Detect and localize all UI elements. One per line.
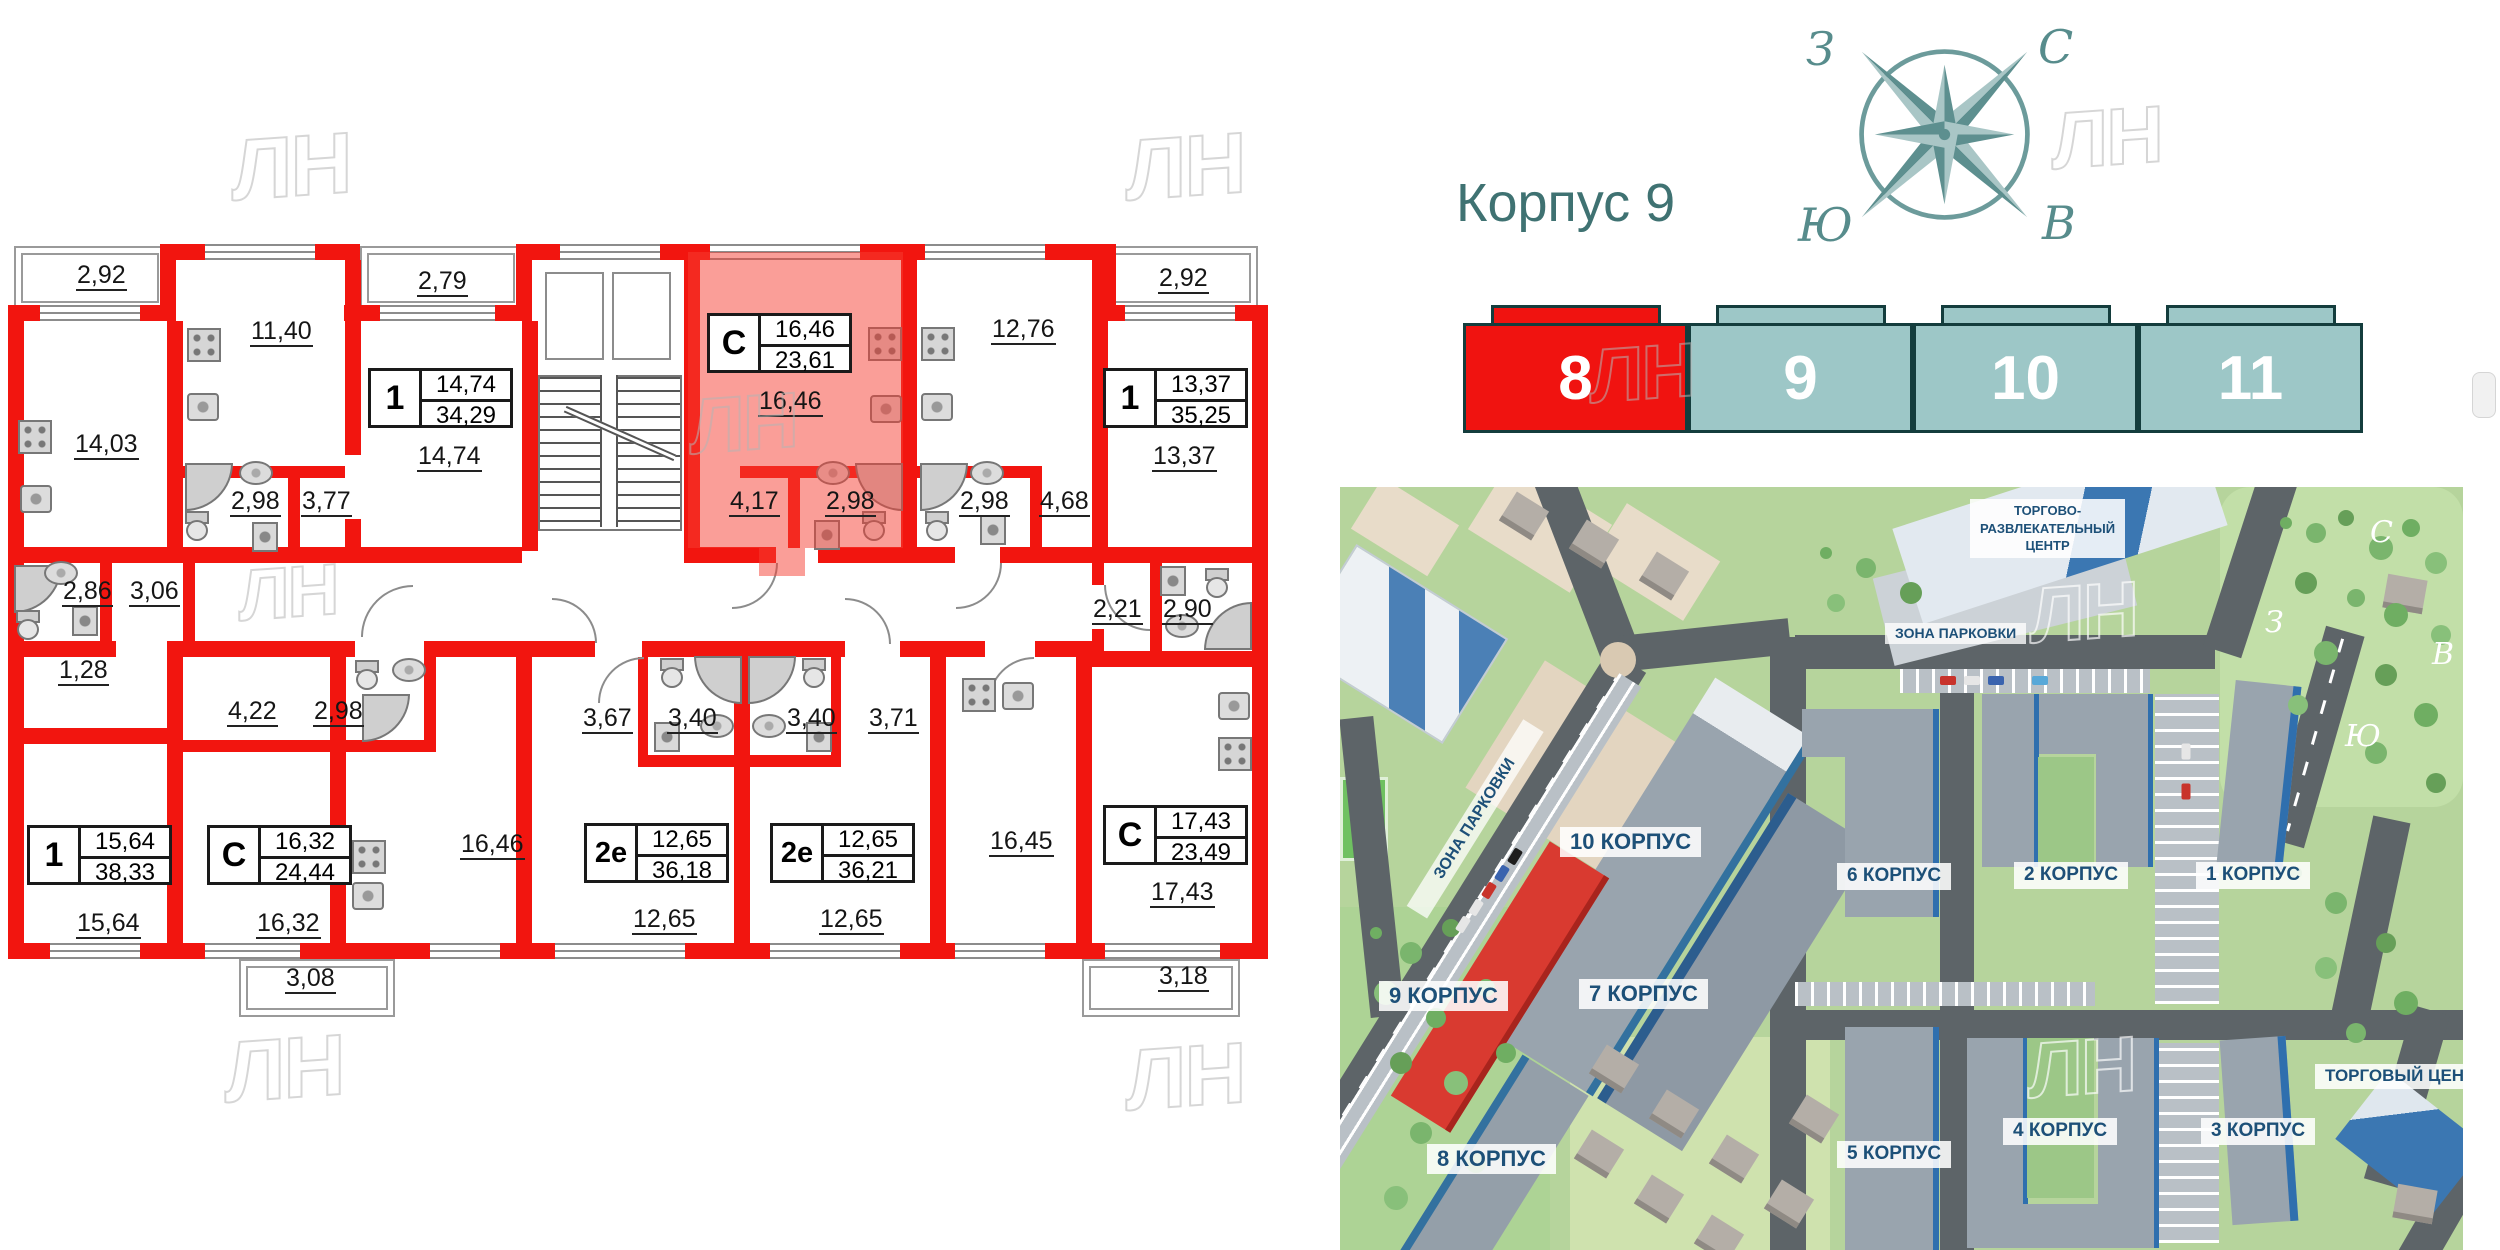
map-car bbox=[2182, 744, 2191, 760]
room-area-label: 12,65 bbox=[632, 906, 697, 935]
window bbox=[430, 943, 500, 959]
map-label-mall: ТОРГОВО- РАЗВЛЕКАТЕЛЬНЫЙ ЦЕНТР bbox=[1970, 499, 2125, 558]
apartment-badge: 2е 12,6536,18 bbox=[584, 823, 729, 883]
logo-watermark: ЛН bbox=[1126, 114, 1244, 221]
room-area-label: 3,77 bbox=[301, 488, 352, 517]
map-label-korpus-4: 4 КОРПУС bbox=[2003, 1118, 2117, 1145]
washbasin-icon bbox=[239, 461, 273, 485]
apartment-type: С bbox=[210, 828, 261, 882]
room-area-label: 12,76 bbox=[991, 316, 1056, 345]
window bbox=[925, 244, 1045, 260]
washing-machine-icon bbox=[72, 606, 98, 636]
map-label-mall-line: ЦЕНТР bbox=[1980, 537, 2115, 555]
door-arc bbox=[845, 598, 891, 644]
stove-icon bbox=[921, 327, 955, 361]
washing-machine-icon bbox=[252, 522, 278, 552]
wall bbox=[344, 547, 522, 563]
apartment-type: С bbox=[1106, 808, 1157, 862]
room-area-label: 2,21 bbox=[1092, 596, 1143, 625]
total-area: 36,21 bbox=[824, 857, 912, 885]
map-compass-north-label: С bbox=[2370, 515, 2393, 550]
apartment-type: 1 bbox=[30, 828, 81, 882]
shower-icon bbox=[362, 694, 410, 742]
living-area: 16,32 bbox=[261, 828, 349, 859]
total-area: 35,25 bbox=[1157, 402, 1245, 430]
elevator-shaft bbox=[545, 272, 604, 360]
wall bbox=[901, 260, 917, 547]
wall bbox=[930, 641, 946, 943]
map-car bbox=[2032, 676, 2048, 685]
logo-watermark: ЛН bbox=[1126, 1024, 1244, 1131]
floorplan: 2,92 11,40 2,79 14,74 14,03 2,98 3,77 16… bbox=[0, 0, 1340, 1250]
sink-icon bbox=[352, 882, 384, 910]
wall bbox=[183, 563, 195, 641]
map-car bbox=[1964, 676, 1980, 685]
map-cottage bbox=[2382, 574, 2427, 614]
map-label-korpus-3: 3 КОРПУС bbox=[2201, 1118, 2315, 1145]
page: 2,92 11,40 2,79 14,74 14,03 2,98 3,77 16… bbox=[0, 0, 2500, 1250]
building-number: 10 bbox=[1991, 343, 2060, 414]
apartment-badge: 1 13,3735,25 bbox=[1103, 368, 1248, 428]
wall bbox=[424, 641, 436, 752]
apartment-badge: С 17,4323,49 bbox=[1103, 805, 1248, 865]
map-building-5 bbox=[1845, 1027, 1939, 1250]
wall bbox=[8, 728, 183, 744]
total-area: 38,33 bbox=[81, 859, 169, 887]
room-area-label: 3,71 bbox=[868, 705, 919, 734]
stove-icon bbox=[187, 328, 221, 362]
stove-icon bbox=[962, 678, 996, 712]
room-area-label: 2,86 bbox=[62, 578, 113, 607]
logo-watermark: ЛН bbox=[225, 1016, 343, 1123]
logo-watermark: ЛН bbox=[2028, 1018, 2135, 1116]
wall bbox=[1092, 547, 1268, 563]
logo-watermark: ЛН bbox=[690, 374, 797, 472]
total-area: 34,29 bbox=[422, 402, 510, 430]
window bbox=[1125, 305, 1235, 321]
stove-icon bbox=[352, 840, 386, 874]
door-arc bbox=[598, 657, 644, 703]
apartment-type: 2е bbox=[587, 826, 638, 880]
map-label-korpus-6: 6 КОРПУС bbox=[1837, 863, 1951, 890]
room-area-label: 11,40 bbox=[250, 318, 313, 347]
washbasin-icon bbox=[392, 658, 426, 682]
wall bbox=[167, 641, 183, 943]
map-trees bbox=[1370, 927, 1382, 939]
logo-watermark: ЛН bbox=[239, 549, 338, 638]
wall bbox=[638, 755, 841, 767]
shower-icon bbox=[694, 656, 742, 704]
room-area-label: 14,03 bbox=[74, 431, 139, 460]
compass-west-label: З bbox=[1806, 22, 1835, 76]
wall bbox=[330, 641, 346, 943]
toilet-icon bbox=[925, 511, 945, 539]
map-label-korpus-2: 2 КОРПУС bbox=[2014, 862, 2128, 889]
apartment-badge: 1 14,7434,29 bbox=[368, 368, 513, 428]
stove-icon bbox=[18, 420, 52, 454]
living-area: 12,65 bbox=[824, 826, 912, 857]
building-number: 11 bbox=[2218, 343, 2284, 414]
room-area-label: 4,17 bbox=[729, 488, 780, 517]
apartment-badge: С 16,3224,44 bbox=[207, 825, 352, 885]
room-area-label: 2,90 bbox=[1162, 596, 1213, 625]
room-area-label: 4,22 bbox=[227, 698, 278, 727]
toilet-icon bbox=[660, 658, 680, 686]
room-area-label: 3,06 bbox=[129, 578, 180, 607]
room-area-label: 13,37 bbox=[1152, 443, 1217, 472]
site-map: С З В Ю 10 КОРПУС 6 КОРПУС 2 КОРПУС 1 КО… bbox=[1340, 487, 2463, 1250]
room-area-label: 16,46 bbox=[460, 831, 525, 860]
room-area-label: 3,40 bbox=[786, 705, 837, 734]
room-area-label: 2,92 bbox=[1158, 265, 1209, 294]
door-arc bbox=[552, 598, 597, 643]
living-area: 15,64 bbox=[81, 828, 169, 859]
door-arc bbox=[361, 585, 413, 637]
wall bbox=[516, 641, 532, 943]
map-cottage bbox=[2392, 1184, 2437, 1224]
room-area-label: 2,79 bbox=[417, 268, 468, 297]
room-area-label: 12,65 bbox=[819, 906, 884, 935]
map-label-mall-line: ТОРГОВО- bbox=[1980, 502, 2115, 520]
toilet-icon bbox=[16, 610, 36, 638]
room-area-label: 3,40 bbox=[667, 705, 718, 734]
map-label-korpus-1: 1 КОРПУС bbox=[2196, 862, 2310, 889]
map-building-6-wing bbox=[1802, 709, 1932, 757]
map-label-korpus-7: 7 КОРПУС bbox=[1579, 979, 1708, 1009]
total-area: 24,44 bbox=[261, 859, 349, 887]
window bbox=[1105, 943, 1220, 959]
total-area: 36,18 bbox=[638, 857, 726, 885]
map-parking-strip bbox=[1795, 982, 2095, 1006]
map-label-shopping-center: ТОРГОВЫЙ ЦЕНТР bbox=[2315, 1064, 2463, 1089]
window bbox=[560, 244, 660, 260]
window bbox=[955, 943, 1045, 959]
window bbox=[50, 943, 140, 959]
logo-watermark: ЛН bbox=[2030, 563, 2137, 661]
shower-icon bbox=[185, 463, 233, 511]
apartment-badge-highlighted: С 16,4623,61 bbox=[707, 313, 852, 373]
apartment-badge: 1 15,6438,33 bbox=[27, 825, 172, 885]
wall bbox=[1000, 547, 1092, 563]
apartment-type: С bbox=[710, 316, 761, 370]
sink-icon bbox=[187, 393, 219, 421]
total-area: 23,49 bbox=[1157, 839, 1245, 867]
room-area-label: 2,98 bbox=[313, 698, 364, 727]
map-label-parking-zone: ЗОНА ПАРКОВКИ bbox=[1885, 623, 2026, 644]
room-area-label: 14,74 bbox=[417, 443, 482, 472]
apartment-badge: 2е 12,6536,21 bbox=[770, 823, 915, 883]
stove-icon bbox=[1218, 737, 1252, 771]
logo-watermark: ЛН bbox=[2052, 88, 2162, 188]
window bbox=[40, 305, 140, 321]
room-area-label: 17,43 bbox=[1150, 879, 1215, 908]
page-title: Корпус 9 bbox=[1456, 172, 1675, 234]
room-area-label: 2,92 bbox=[76, 262, 127, 291]
wall bbox=[522, 641, 595, 657]
wall bbox=[1252, 305, 1268, 959]
map-road bbox=[1619, 618, 1792, 672]
room-area-label: 2,98 bbox=[230, 488, 281, 517]
apartment-type: 1 bbox=[1106, 371, 1157, 425]
wall bbox=[167, 321, 183, 547]
window bbox=[555, 943, 685, 959]
logo-watermark: ЛН bbox=[232, 114, 350, 221]
total-area: 23,61 bbox=[761, 347, 849, 375]
building-number: 8 bbox=[1558, 343, 1592, 414]
compass-north-label: С bbox=[2038, 20, 2073, 74]
window bbox=[205, 943, 300, 959]
map-car bbox=[2182, 784, 2191, 800]
map-parking-strip bbox=[1900, 669, 2150, 693]
map-compass-east-label: В bbox=[2432, 637, 2454, 672]
door-arc bbox=[956, 563, 1002, 609]
room-area-label: 16,45 bbox=[989, 828, 1054, 857]
map-car bbox=[1940, 676, 1956, 685]
living-area: 16,46 bbox=[761, 316, 849, 347]
window bbox=[770, 943, 900, 959]
wall bbox=[288, 478, 300, 547]
compass-east-label: В bbox=[2042, 196, 2076, 250]
room-area-label: 4,68 bbox=[1039, 488, 1090, 517]
wall bbox=[8, 641, 116, 657]
washing-machine-icon bbox=[1160, 566, 1186, 596]
map-parking-strip bbox=[2155, 694, 2219, 1004]
shower-icon bbox=[748, 656, 796, 704]
wall bbox=[1076, 651, 1092, 943]
living-area: 12,65 bbox=[638, 826, 726, 857]
room-area-label: 2,98 bbox=[825, 488, 876, 517]
map-building-4 bbox=[1967, 1204, 2154, 1248]
map-building-2 bbox=[2096, 694, 2153, 867]
apartment-type: 1 bbox=[371, 371, 422, 425]
map-compass-south-label: Ю bbox=[2345, 719, 2381, 754]
map-label-korpus-9: 9 КОРПУС bbox=[1379, 981, 1508, 1011]
logo-watermark: ЛН bbox=[1590, 326, 1694, 420]
sink-icon bbox=[1002, 682, 1034, 710]
toilet-icon bbox=[185, 511, 205, 539]
map-label-korpus-8: 8 КОРПУС bbox=[1427, 1144, 1556, 1174]
toilet-icon bbox=[1205, 568, 1225, 596]
map-building-2 bbox=[1982, 694, 2039, 867]
toilet-icon bbox=[802, 658, 822, 686]
sink-icon bbox=[1218, 692, 1250, 720]
living-area: 17,43 bbox=[1157, 808, 1245, 839]
wall bbox=[1092, 563, 1104, 585]
sink-icon bbox=[921, 393, 953, 421]
elevator-shaft bbox=[612, 272, 671, 360]
highlighted-apartment-vestibule[interactable] bbox=[759, 548, 805, 576]
room-area-label: 1,28 bbox=[58, 657, 109, 686]
room-area-label: 16,32 bbox=[256, 910, 321, 939]
wall bbox=[424, 641, 522, 657]
room-area-label: 2,98 bbox=[959, 488, 1010, 517]
washbasin-icon bbox=[970, 461, 1004, 485]
window bbox=[205, 244, 315, 260]
wall bbox=[522, 321, 538, 551]
toilet-icon bbox=[355, 660, 375, 688]
apartment-type: 2е bbox=[773, 826, 824, 880]
map-trees bbox=[2280, 517, 2292, 529]
map-roundabout bbox=[1600, 642, 1636, 678]
washbasin-icon bbox=[752, 714, 786, 738]
window bbox=[380, 305, 495, 321]
map-compass-west-label: З bbox=[2265, 605, 2284, 640]
wall bbox=[1092, 651, 1268, 667]
compass-south-label: Ю bbox=[1798, 198, 1853, 252]
wall bbox=[1092, 629, 1104, 651]
map-courtyard bbox=[2038, 757, 2094, 867]
map-label-mall-line: РАЗВЛЕКАТЕЛЬНЫЙ bbox=[1980, 520, 2115, 538]
building-number: 9 bbox=[1783, 343, 1817, 414]
wall bbox=[183, 740, 436, 752]
living-area: 14,74 bbox=[422, 371, 510, 402]
living-area: 13,37 bbox=[1157, 371, 1245, 402]
compass-rose bbox=[1822, 12, 2067, 257]
room-area-label: 15,64 bbox=[76, 910, 141, 939]
sink-icon bbox=[20, 485, 52, 513]
map-road bbox=[2328, 815, 2411, 1038]
map-label-korpus-10: 10 КОРПУС bbox=[1560, 827, 1701, 857]
map-trees bbox=[1820, 547, 1832, 559]
room-area-label: 3,08 bbox=[285, 965, 336, 994]
scrollbar-fragment[interactable] bbox=[2472, 372, 2496, 418]
washing-machine-icon bbox=[980, 515, 1006, 545]
map-car bbox=[1988, 676, 2004, 685]
map-label-korpus-5: 5 КОРПУС bbox=[1837, 1141, 1951, 1168]
room-area-label: 3,18 bbox=[1158, 963, 1209, 992]
staircase-stringer bbox=[600, 375, 618, 527]
room-area-label: 3,67 bbox=[582, 705, 633, 734]
